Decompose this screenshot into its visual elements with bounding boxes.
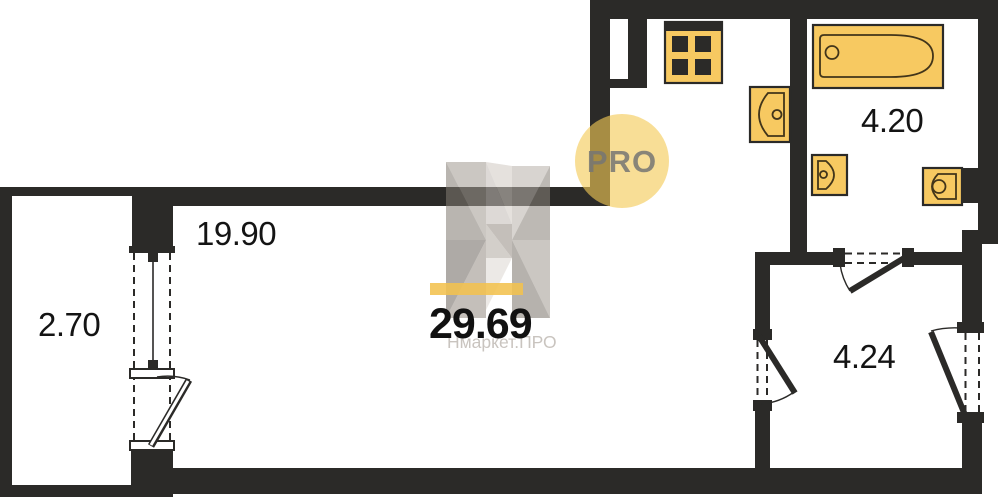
hall-door-jamb-bottom <box>753 400 772 411</box>
bathroom-area-label: 4.20 <box>861 104 923 137</box>
entrance-door <box>931 328 979 415</box>
wall-hall-right-upper <box>962 243 982 333</box>
wall-balcony-left <box>0 187 12 497</box>
window-head-bar <box>129 246 175 253</box>
wall-bottom <box>173 468 982 494</box>
balcony-door <box>130 376 190 450</box>
kitchen-sink-icon <box>750 87 790 142</box>
bathroom-door-jamb-left <box>833 248 845 267</box>
wall-kitchen-bathroom <box>790 17 807 265</box>
bathtub-icon <box>813 25 943 88</box>
stove-icon <box>665 22 722 83</box>
wall-hall-living-upper <box>755 252 770 330</box>
bathroom-door <box>840 254 906 292</box>
balcony-area-label: 2.70 <box>38 308 100 341</box>
wall-duct-strip <box>628 17 647 87</box>
wall-right-step <box>962 230 998 244</box>
wall-top <box>590 0 998 19</box>
living-room-area-label: 19.90 <box>196 217 276 250</box>
toilet-icon <box>923 168 978 205</box>
wall-bathroom-right <box>978 0 998 243</box>
entrance-door-jamb-bottom <box>957 412 984 423</box>
entrance-door-jamb-top <box>957 322 984 333</box>
floor-plan-drawing <box>0 0 1000 497</box>
wall-balcony-top <box>0 187 132 196</box>
wall-hall-living-lower <box>755 410 770 468</box>
hallway-door <box>758 336 796 404</box>
wall-window-pier <box>132 187 173 248</box>
total-area-label: 29.69 <box>429 303 532 346</box>
brand-logo-accent-bar <box>430 283 523 295</box>
floor-plan: Нмаркет.ПРО 19.90 2.70 4.20 4.24 29.69 P… <box>0 0 1000 497</box>
hallway-area-label: 4.24 <box>833 340 895 373</box>
wall-duct-cap <box>610 79 647 88</box>
pro-badge-watermark: PRO <box>575 114 669 208</box>
washbasin-icon <box>812 155 847 195</box>
wall-hall-top-right <box>914 252 962 265</box>
brand-logo-watermark <box>430 162 550 318</box>
hallway-door-leaf <box>759 336 795 393</box>
wall-balcony-bottom <box>0 485 173 497</box>
entrance-door-leaf <box>931 332 965 415</box>
pro-badge-text: PRO <box>587 146 657 177</box>
